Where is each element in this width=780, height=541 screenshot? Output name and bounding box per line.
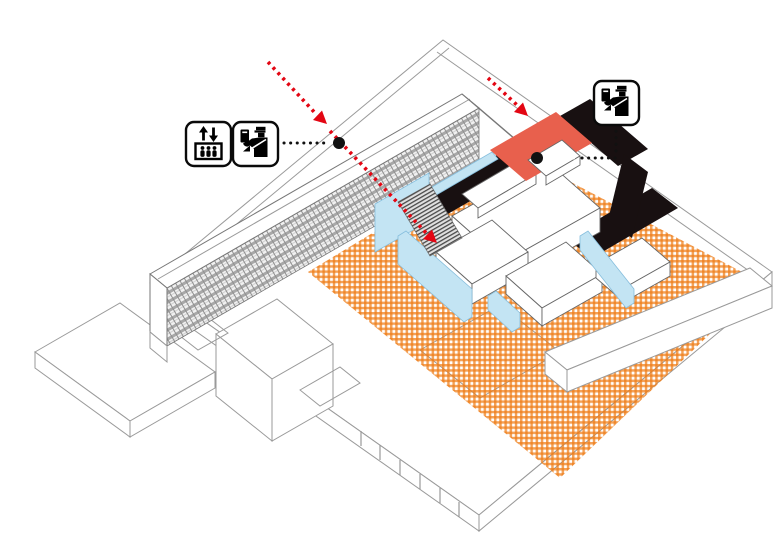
reference-dot-roof bbox=[333, 137, 345, 149]
axonometric-diagram bbox=[0, 0, 780, 541]
diagram-canvas bbox=[0, 0, 780, 541]
arrow1-dash-outside bbox=[268, 62, 316, 114]
reference-dot-red-roof bbox=[531, 152, 543, 164]
legend-left-group bbox=[186, 122, 278, 166]
passport-control-icon-left bbox=[233, 122, 278, 166]
passport-control-icon-right bbox=[594, 81, 639, 125]
arrow1-head-roof bbox=[313, 111, 327, 125]
elevator-icon bbox=[186, 122, 231, 166]
